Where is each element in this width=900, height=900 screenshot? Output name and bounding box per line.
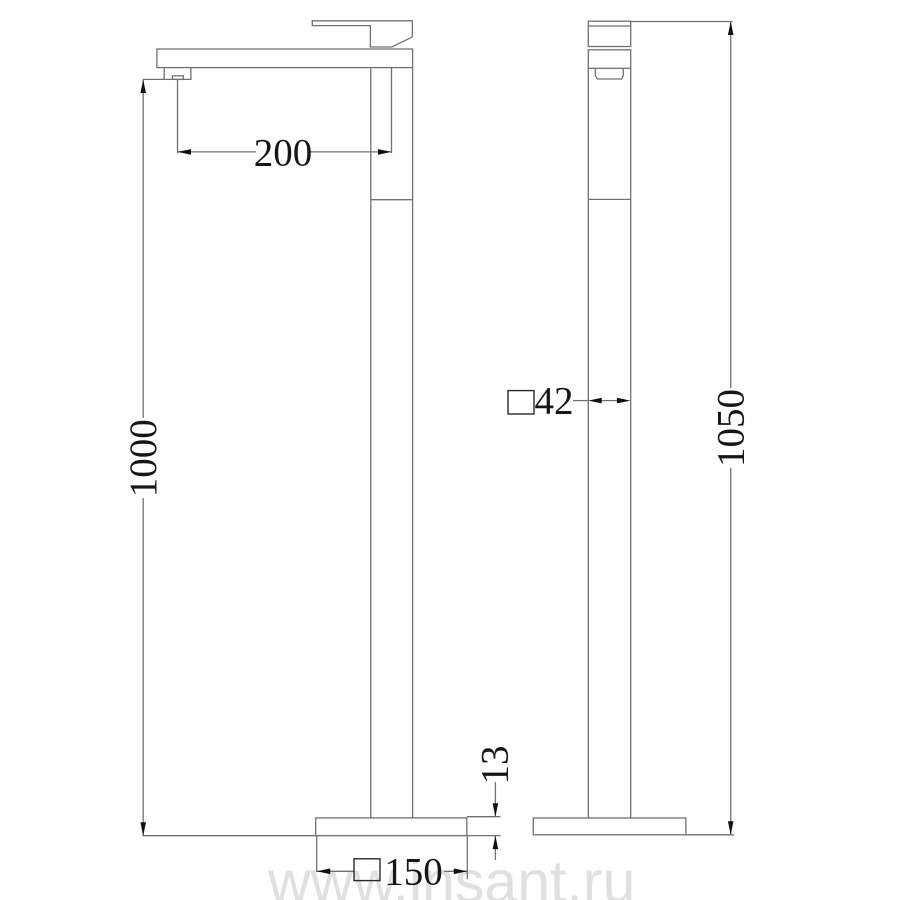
svg-text:200: 200 — [254, 131, 313, 174]
svg-text:13: 13 — [474, 746, 517, 785]
svg-text:1000: 1000 — [122, 419, 165, 497]
svg-text:150: 150 — [384, 851, 443, 894]
svg-text:www.insant.ru: www.insant.ru — [267, 849, 635, 900]
svg-text:42: 42 — [535, 380, 574, 423]
svg-text:1050: 1050 — [710, 389, 753, 467]
